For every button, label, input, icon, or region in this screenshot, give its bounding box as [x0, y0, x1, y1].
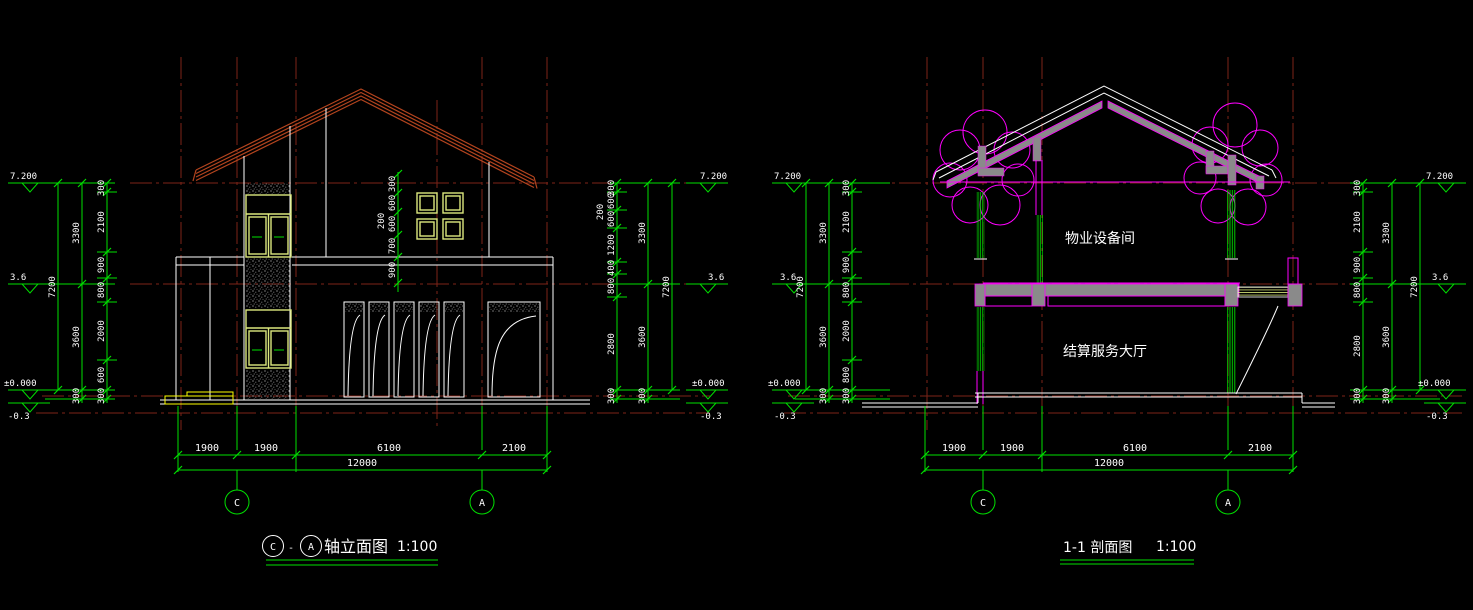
dim-label: 800: [842, 367, 852, 383]
grid-bubble-label: C: [234, 498, 240, 509]
dim-label: 800: [607, 278, 617, 294]
ground-line: [862, 393, 1335, 407]
dim-label: 300: [388, 176, 398, 192]
upper-windows: [417, 193, 463, 239]
dim-label: 300: [1353, 180, 1363, 196]
drawing-sheet: 7.200 3.6 ±0.000 -0.3 7.200 3.6 ±0.000 -…: [0, 0, 1473, 610]
stone-texture: [246, 370, 290, 399]
section-view: 物业设备间 结算服务大厅: [768, 57, 1466, 564]
dim-label: 3300: [1382, 222, 1392, 244]
dim-label: 300: [819, 388, 829, 404]
dim-label: 6100: [377, 443, 401, 454]
dim-label: 1900: [942, 443, 966, 454]
dim-label: 900: [388, 262, 398, 278]
dim-label: 7200: [662, 276, 672, 298]
axis-bubbles: C A: [971, 470, 1240, 514]
elev-label: 3.6: [10, 273, 26, 283]
title-separator: -: [288, 543, 294, 554]
dim-label: 7200: [1410, 276, 1420, 298]
dim-label: 3600: [1382, 326, 1392, 348]
elev-label: 7.200: [774, 172, 801, 182]
elev-label: 3.6: [1432, 273, 1448, 283]
dim-label: 800: [842, 282, 852, 298]
view-title: 1-1 剖面图 1:100: [1060, 539, 1196, 564]
dim-label: 300: [97, 388, 107, 404]
dim-label: 2100: [97, 211, 107, 233]
grid-bubble-label: C: [980, 498, 986, 509]
section-building: 物业设备间 结算服务大厅: [862, 86, 1335, 407]
dim-label: 7200: [796, 276, 806, 298]
dim-label: 3300: [638, 222, 648, 244]
grid-bubble-label: A: [479, 498, 485, 509]
dim-label: 300: [607, 388, 617, 404]
dim-label: 200: [377, 213, 387, 229]
cut-columns: [974, 160, 1238, 404]
column-hatch: [976, 307, 985, 371]
dim-label: 7200: [48, 276, 58, 298]
dim-label: 300: [97, 180, 107, 196]
elev-label: -0.3: [774, 412, 796, 422]
dim-label: 1900: [195, 443, 219, 454]
stone-texture: [246, 258, 290, 308]
dim-label: 1900: [254, 443, 278, 454]
dim-label: 2000: [97, 320, 107, 342]
roof-section: [933, 86, 1276, 189]
dim-label: 2000: [842, 320, 852, 342]
dim-label: 1900: [1000, 443, 1024, 454]
dim-label: 300: [1382, 388, 1392, 404]
dim-label: 12000: [347, 458, 377, 469]
dim-label: 3600: [72, 326, 82, 348]
column-hatch: [1227, 190, 1236, 258]
column-hatch: [1227, 307, 1236, 393]
title-bubble-label: A: [308, 542, 314, 553]
dim-label: 3600: [638, 326, 648, 348]
dim-label: 900: [842, 257, 852, 273]
elev-label: 7.200: [700, 172, 727, 182]
title-underline: [1060, 560, 1194, 564]
elev-label: 7.200: [10, 172, 37, 182]
title-underline: [266, 560, 438, 565]
dim-label: 300: [72, 388, 82, 404]
view-title: C - A 轴立面图 1:100: [263, 536, 439, 566]
elev-label: -0.3: [1426, 412, 1448, 422]
dim-label: 400: [607, 260, 617, 276]
dim-label: 3600: [819, 326, 829, 348]
dim-label: 2800: [1353, 335, 1363, 357]
elev-label: ±0.000: [768, 379, 801, 389]
elev-label: 3.6: [780, 273, 796, 283]
tower-window-upper: [246, 195, 291, 257]
dim-label: 600: [97, 367, 107, 383]
dim-label: 900: [97, 257, 107, 273]
drawing-scale: 1:100: [1156, 539, 1196, 555]
dim-label: 600: [607, 211, 617, 227]
tower-window-lower: [246, 310, 291, 368]
dim-label: 300: [1353, 388, 1363, 404]
elevation-building: [160, 89, 590, 404]
drawing-scale: 1:100: [397, 539, 437, 555]
dim-label: 900: [1353, 257, 1363, 273]
stone-texture: [246, 183, 290, 194]
dim-label: 300: [842, 180, 852, 196]
elev-label: 3.6: [708, 273, 724, 283]
elev-label: ±0.000: [1418, 379, 1451, 389]
canopy: [1236, 258, 1302, 394]
dim-label: 3300: [72, 222, 82, 244]
dim-label: 600: [388, 195, 398, 211]
dim-label: 12000: [1094, 458, 1124, 469]
elevation-dim-labels: 7.200 3.6 ±0.000 -0.3 7.200 3.6 ±0.000 -…: [4, 172, 727, 469]
dim-label: 800: [97, 282, 107, 298]
dim-label: 700: [388, 238, 398, 254]
elevation-view: 7.200 3.6 ±0.000 -0.3 7.200 3.6 ±0.000 -…: [4, 57, 728, 565]
door-panels: [344, 302, 540, 397]
room-label: 物业设备间: [1065, 230, 1135, 247]
dim-label: 1200: [607, 234, 617, 256]
room-label: 结算服务大厅: [1063, 344, 1147, 360]
dim-label: 2100: [842, 211, 852, 233]
elev-label: ±0.000: [692, 379, 725, 389]
floor-slab: [975, 283, 1240, 306]
title-bubble-label: C: [270, 542, 276, 553]
drawing-title: 轴立面图: [324, 537, 388, 556]
dim-label: 200: [596, 204, 606, 220]
dim-label: 2100: [1353, 211, 1363, 233]
elev-label: -0.3: [700, 412, 722, 422]
dim-label: 2100: [502, 443, 526, 454]
elev-label: -0.3: [8, 412, 30, 422]
cad-canvas: 7.200 3.6 ±0.000 -0.3 7.200 3.6 ±0.000 -…: [0, 0, 1473, 610]
dim-label: 2800: [607, 333, 617, 355]
roof: [193, 89, 537, 189]
axis-bubbles: C A: [225, 470, 494, 514]
dim-label: 800: [1353, 282, 1363, 298]
dim-label: 2100: [1248, 443, 1272, 454]
elevation-dimensions: [8, 170, 728, 474]
dim-label: 300: [842, 388, 852, 404]
dim-label: 600: [388, 216, 398, 232]
dim-label: 300: [638, 388, 648, 404]
section-dim-labels: 7.200 3.6 ±0.000 -0.3 7.200 3.6 ±0.000 -…: [768, 172, 1453, 469]
column-hatch: [976, 192, 985, 258]
elev-label: 7.200: [1426, 172, 1453, 182]
column-hatch: [1036, 215, 1043, 283]
elev-label: ±0.000: [4, 379, 37, 389]
dim-label: 3300: [819, 222, 829, 244]
entry-steps: [165, 392, 233, 404]
drawing-title: 1-1 剖面图: [1063, 540, 1132, 556]
grid-bubble-label: A: [1225, 498, 1231, 509]
dim-label: 600: [607, 193, 617, 209]
dim-label: 6100: [1123, 443, 1147, 454]
